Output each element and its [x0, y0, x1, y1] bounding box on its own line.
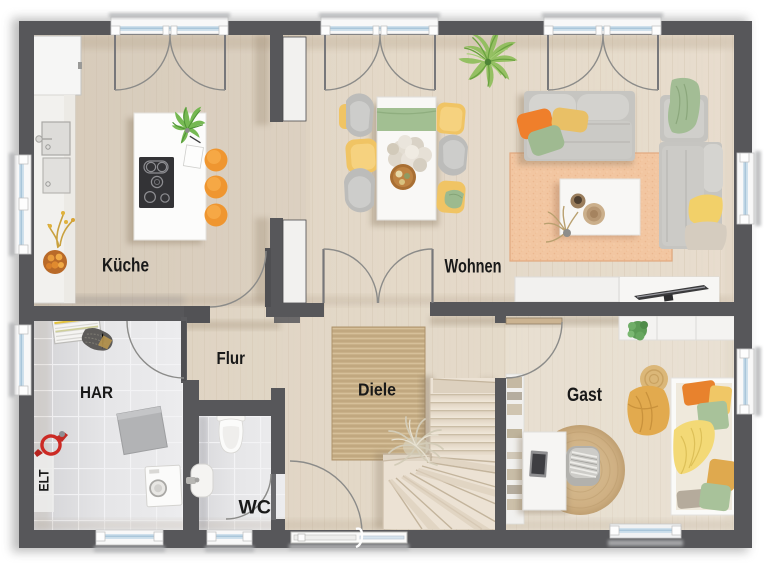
svg-text:Gast: Gast	[567, 385, 603, 406]
svg-text:Flur: Flur	[217, 348, 246, 368]
svg-text:Küche: Küche	[102, 256, 149, 277]
svg-text:ELT: ELT	[36, 469, 52, 491]
svg-text:Diele: Diele	[358, 380, 396, 400]
svg-text:HAR: HAR	[80, 383, 113, 402]
svg-text:WC: WC	[239, 498, 272, 519]
svg-text:Wohnen: Wohnen	[445, 256, 502, 278]
